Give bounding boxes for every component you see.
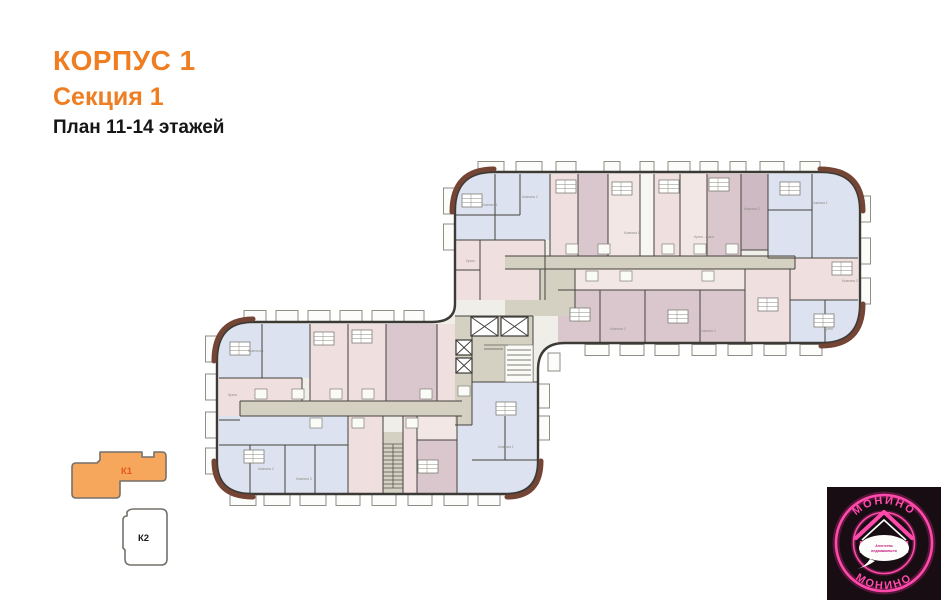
room-label: Комната 1: [812, 201, 828, 205]
room-label: Кухня: [466, 259, 475, 263]
room-label: Комната 3: [700, 329, 716, 333]
k1-footprint: [72, 452, 166, 498]
room-label: Комната 2: [258, 467, 274, 471]
room-label: Комната 2: [610, 327, 626, 331]
room-label: Комната 2: [744, 207, 760, 211]
room-label: Комната 1: [482, 203, 498, 207]
room-label: Комната 3: [296, 477, 312, 481]
plan-canvas: Комната 1 Комната 2 Кухня Комната 1 Кухн…: [0, 0, 941, 600]
white-room: [640, 174, 654, 256]
room-label: Кухня: [228, 393, 237, 397]
room-label: Комната 1: [498, 445, 514, 449]
room-label: Кухня: [824, 327, 833, 331]
page: КОРПУС 1 Секция 1 План 11-14 этажей: [0, 0, 941, 600]
logo-tagline-1: Агентство: [875, 544, 893, 548]
room-label: Комната 2: [842, 279, 858, 283]
brand-logo: Агентство недвижимости МОНИНО МОНИНО: [827, 487, 941, 600]
floor-plan: Комната 1 Комната 2 Кухня Комната 1 Кухн…: [206, 162, 871, 506]
room-label: Комната 2: [522, 195, 538, 199]
apartments-mauve-dark: [741, 174, 768, 250]
room-label: Комната 1: [624, 231, 640, 235]
room-label: Комната 1: [248, 349, 264, 353]
k2-label: К2: [138, 533, 149, 544]
k1-label: К1: [121, 466, 133, 477]
room-label: Кухня - ниша: [694, 235, 714, 239]
logo-tagline-2: недвижимости: [871, 549, 897, 553]
key-minimap: К1 К2: [72, 452, 167, 565]
